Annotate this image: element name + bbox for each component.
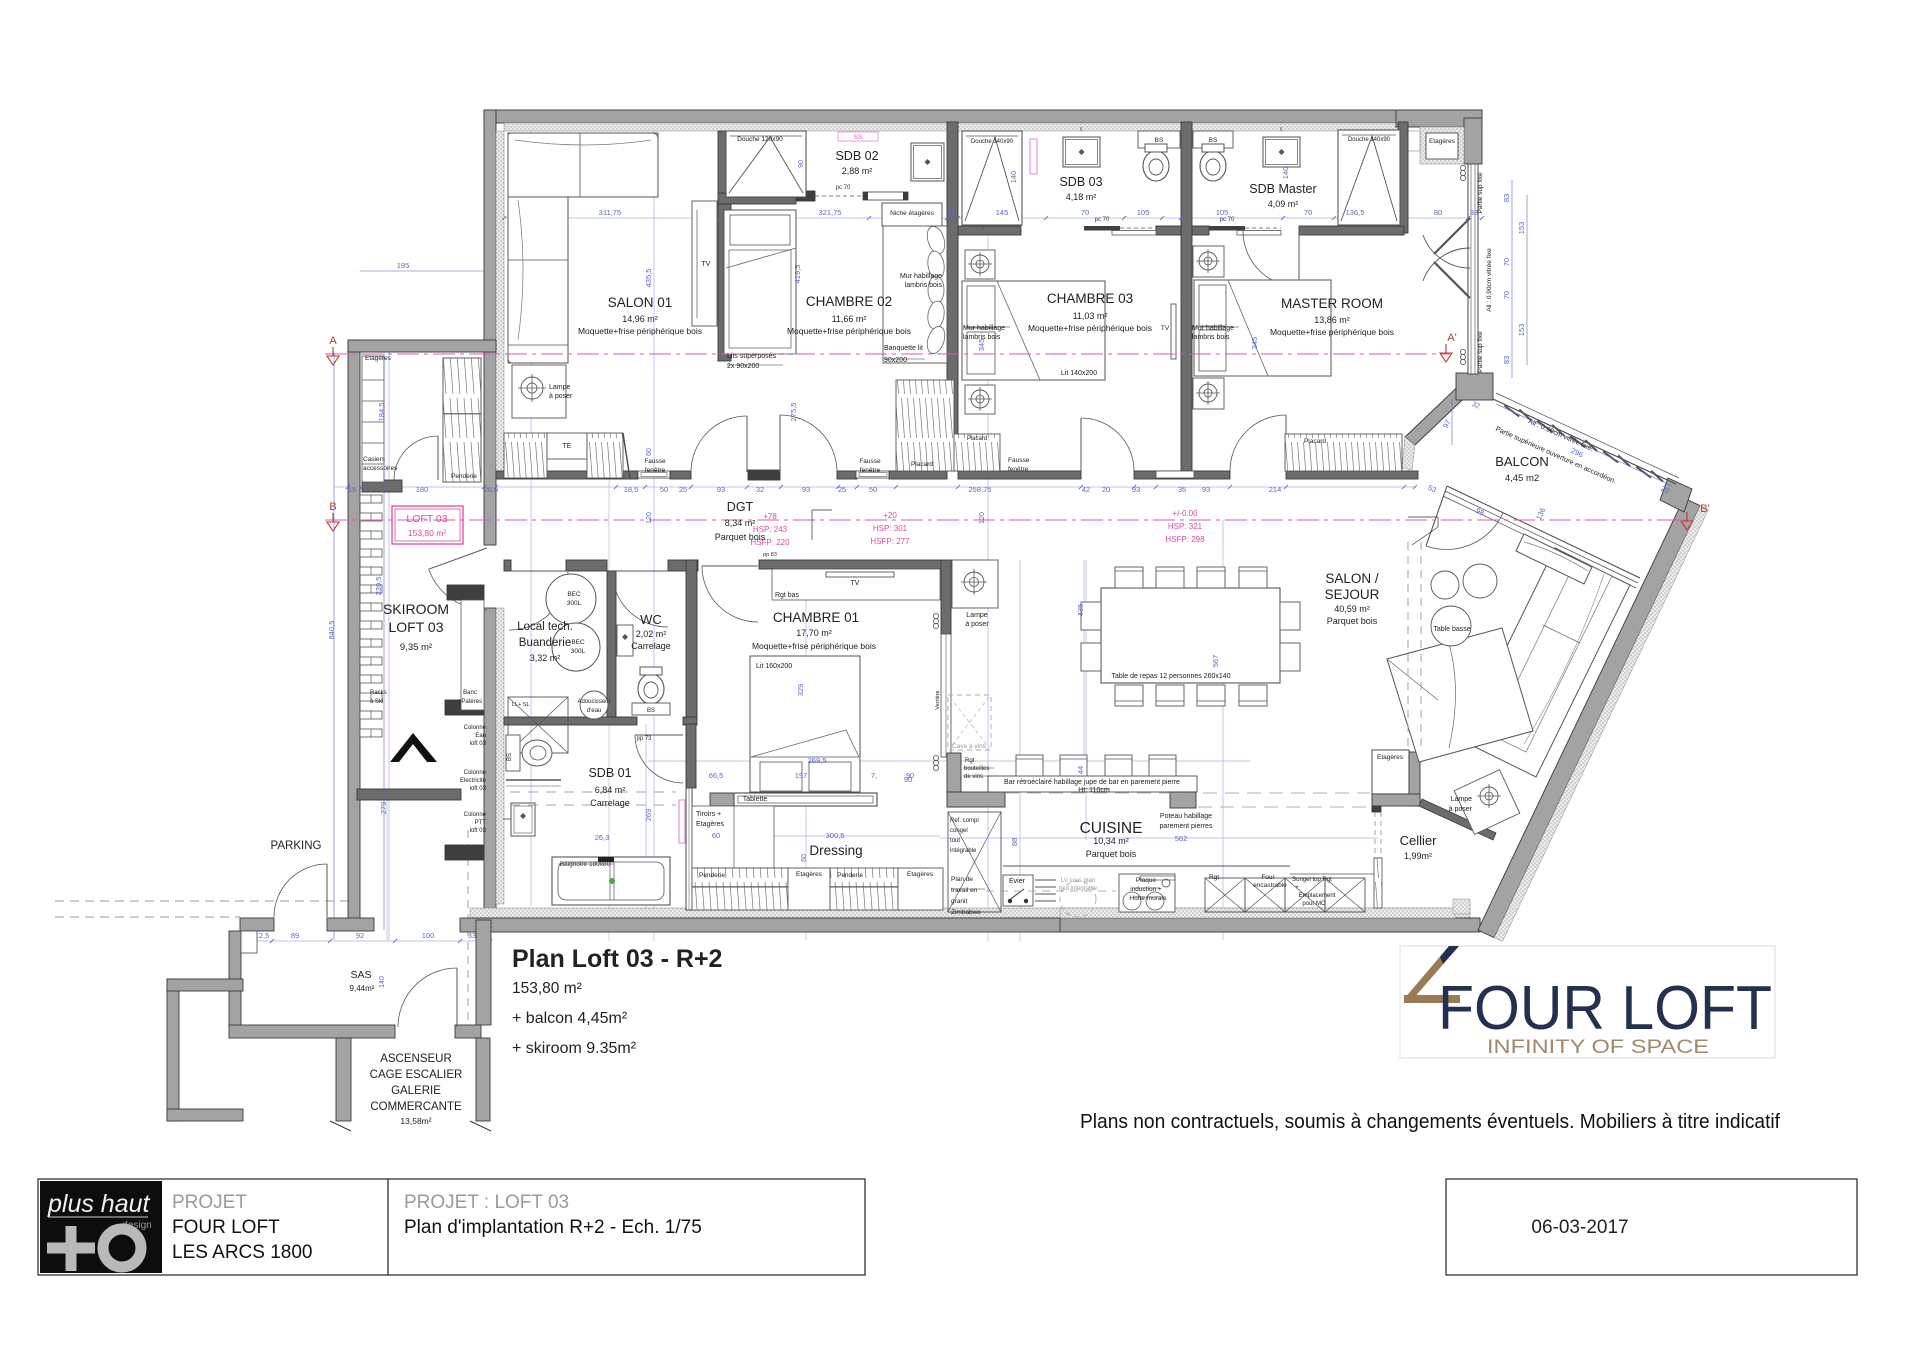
svg-text:Cellier: Cellier: [1400, 833, 1438, 848]
svg-text:4,45 m2: 4,45 m2: [1505, 473, 1539, 484]
svg-text:93: 93: [717, 485, 725, 494]
svg-text:Partie sup fixe: Partie sup fixe: [1477, 331, 1484, 373]
svg-text:Placard: Placard: [967, 436, 987, 442]
svg-text:Moquette+frise périphérique bo: Moquette+frise périphérique bois: [1270, 327, 1394, 337]
svg-text:140: 140: [1009, 171, 1018, 184]
svg-text:88: 88: [1010, 838, 1019, 846]
svg-text:32: 32: [756, 485, 764, 494]
svg-text:345: 345: [1250, 337, 1259, 350]
svg-text:Lampe: Lampe: [1451, 796, 1473, 803]
svg-text:DGT: DGT: [727, 500, 754, 514]
svg-text:Moquette+frise périphérique bo: Moquette+frise périphérique bois: [752, 641, 876, 651]
svg-text:Penderie: Penderie: [699, 872, 725, 879]
svg-text:Baignoire 180x80: Baignoire 180x80: [560, 861, 611, 868]
svg-text:06-03-2017: 06-03-2017: [1531, 1217, 1628, 1238]
svg-text:38: 38: [1470, 208, 1478, 217]
svg-text:26,3: 26,3: [595, 833, 610, 842]
svg-text:60: 60: [646, 448, 653, 456]
svg-text:Table basse: Table basse: [1433, 626, 1470, 633]
svg-text:pc 70: pc 70: [1220, 217, 1235, 223]
svg-text:+ skiroom 9.35m²: + skiroom 9.35m²: [512, 1040, 637, 1057]
svg-text:WC: WC: [640, 612, 662, 627]
svg-text:Zimbabwe: Zimbabwe: [951, 909, 981, 916]
svg-text:35: 35: [1178, 485, 1186, 494]
svg-text:Fausse: Fausse: [644, 458, 666, 465]
svg-text:TV: TV: [702, 261, 711, 268]
svg-text:SAS: SAS: [350, 969, 371, 981]
svg-text:Hotte murale: Hotte murale: [1129, 895, 1167, 902]
svg-text:ASCENSEUR: ASCENSEUR: [380, 1053, 452, 1065]
svg-text:MASTER ROOM: MASTER ROOM: [1281, 296, 1383, 311]
svg-text:25: 25: [679, 485, 687, 494]
svg-text:CAGE ESCALIER: CAGE ESCALIER: [370, 1069, 463, 1081]
svg-text:Electricité: Electricité: [460, 778, 487, 784]
svg-text:BS: BS: [1155, 137, 1164, 144]
svg-text:90: 90: [798, 160, 805, 168]
svg-text:Rgt: Rgt: [965, 758, 975, 764]
svg-text:SEJOUR: SEJOUR: [1325, 587, 1380, 602]
svg-text:70: 70: [1502, 258, 1511, 266]
svg-text:83: 83: [1502, 194, 1511, 202]
svg-text:70: 70: [1502, 291, 1511, 299]
svg-text:311,75: 311,75: [599, 208, 621, 217]
svg-text:9,44m²: 9,44m²: [350, 984, 375, 993]
svg-text:14,96 m²: 14,96 m²: [622, 314, 658, 324]
svg-text:153: 153: [1517, 324, 1526, 337]
svg-text:B: B: [329, 501, 336, 513]
svg-text:Songel top Rgt: Songel top Rgt: [1292, 877, 1332, 883]
svg-text:GALERIE: GALERIE: [391, 1085, 441, 1097]
svg-text:Lit 140x200: Lit 140x200: [1061, 370, 1097, 377]
svg-text:70: 70: [1304, 208, 1312, 217]
svg-text:LOFT 03: LOFT 03: [389, 619, 444, 635]
svg-text:258,75: 258,75: [969, 485, 992, 494]
svg-text:140: 140: [1281, 167, 1290, 180]
svg-text:Etagères: Etagères: [796, 871, 823, 878]
svg-text:loft 03: loft 03: [470, 828, 487, 834]
svg-text:HSFP: 277: HSFP: 277: [870, 537, 910, 546]
svg-text:105: 105: [1216, 208, 1229, 217]
svg-text:90x200: 90x200: [884, 357, 907, 364]
svg-text:93: 93: [802, 485, 810, 494]
svg-text:FOUR LOFT: FOUR LOFT: [172, 1217, 280, 1238]
svg-text:à Ski: à Ski: [370, 699, 383, 705]
svg-text:300,5: 300,5: [826, 831, 845, 840]
svg-text:CUISINE: CUISINE: [1080, 820, 1143, 837]
svg-text:A: A: [329, 335, 337, 347]
svg-text:Mur habillage: Mur habillage: [963, 325, 1005, 332]
svg-text:184,5: 184,5: [377, 403, 386, 422]
svg-text:BALCON: BALCON: [1495, 454, 1548, 469]
svg-text:Rgt: Rgt: [1209, 874, 1219, 881]
svg-text:2,02 m²: 2,02 m²: [636, 629, 667, 639]
svg-text:CHAMBRE 03: CHAMBRE 03: [1047, 291, 1133, 306]
svg-text:Etagères: Etagères: [1377, 754, 1404, 761]
svg-text:4,09 m²: 4,09 m²: [1268, 199, 1299, 209]
svg-text:+78: +78: [763, 512, 777, 521]
svg-text:66,5: 66,5: [709, 771, 724, 780]
svg-text:153,80 m²: 153,80 m²: [512, 980, 582, 997]
svg-text:Tablette: Tablette: [743, 796, 768, 803]
svg-text:140: 140: [379, 976, 386, 988]
svg-text:321,75: 321,75: [819, 208, 842, 217]
svg-text:90: 90: [904, 775, 912, 784]
svg-text:17,70 m²: 17,70 m²: [796, 628, 832, 638]
svg-text:HSP: 321: HSP: 321: [1168, 522, 1203, 531]
svg-text:Four: Four: [1261, 874, 1275, 881]
svg-text:Douche 120x90: Douche 120x90: [737, 136, 783, 143]
svg-text:Eau: Eau: [475, 733, 486, 739]
svg-text:60: 60: [801, 854, 808, 862]
svg-text:Penderie: Penderie: [837, 872, 863, 879]
svg-text:345: 345: [977, 339, 986, 352]
svg-text:à poser: à poser: [1449, 806, 1473, 813]
svg-text:Verrière: Verrière: [935, 690, 941, 709]
svg-text:TV: TV: [1161, 325, 1170, 332]
svg-text:Plaque: Plaque: [1136, 877, 1157, 884]
svg-text:Rgt bas: Rgt bas: [775, 592, 800, 599]
svg-text:INFINITY OF SPACE: INFINITY OF SPACE: [1487, 1037, 1709, 1058]
svg-text:congel: congel: [950, 828, 968, 834]
svg-text:840,5: 840,5: [327, 621, 336, 640]
svg-text:Emplacement: Emplacement: [1299, 893, 1336, 899]
svg-text:intégrable: intégrable: [950, 848, 977, 854]
svg-text:Etagères: Etagères: [696, 821, 725, 828]
svg-text:136,5: 136,5: [1346, 208, 1365, 217]
svg-text:Parquet bois: Parquet bois: [1086, 849, 1137, 859]
svg-text:3,32 m²: 3,32 m²: [530, 653, 561, 663]
svg-text:80: 80: [1434, 208, 1442, 217]
svg-text:+/-0.00: +/-0.00: [1172, 509, 1198, 518]
svg-text:4,18 m²: 4,18 m²: [1066, 192, 1097, 202]
svg-text:Penderie: Penderie: [451, 473, 477, 480]
svg-text:70: 70: [1081, 208, 1089, 217]
svg-text:d'eau: d'eau: [587, 708, 602, 714]
svg-text:SDB 03: SDB 03: [1059, 175, 1102, 189]
svg-text:TV: TV: [851, 580, 860, 587]
svg-text:lambris bois: lambris bois: [905, 282, 943, 289]
svg-text:BEC: BEC: [567, 591, 581, 598]
svg-text:40,59 m²: 40,59 m²: [1334, 604, 1370, 614]
svg-text:Casiers: Casiers: [363, 456, 386, 463]
svg-text:20: 20: [1102, 485, 1110, 494]
svg-text:Dressing: Dressing: [809, 843, 862, 858]
svg-text:419,5: 419,5: [793, 265, 802, 284]
svg-text:Ref. compl: Ref. compl: [950, 818, 979, 824]
svg-text:LL+ SL: LL+ SL: [512, 702, 530, 708]
svg-text:pour MO: pour MO: [1302, 901, 1326, 907]
svg-text:Moquette+frise périphérique bo: Moquette+frise périphérique bois: [1028, 323, 1152, 333]
svg-text:Carrelage: Carrelage: [631, 641, 671, 651]
svg-text:BS: BS: [507, 753, 513, 761]
svg-text:Tiroirs +: Tiroirs +: [696, 811, 721, 818]
svg-text:214: 214: [1269, 485, 1282, 494]
svg-text:PROJET: PROJET: [172, 1192, 247, 1213]
svg-text:435: 435: [1076, 604, 1085, 617]
svg-text:567: 567: [1211, 655, 1220, 668]
svg-text:pp 73: pp 73: [636, 736, 652, 742]
svg-text:Lampe: Lampe: [966, 612, 988, 619]
svg-text:encastrable: encastrable: [1253, 882, 1287, 889]
svg-text:Plans non contractuels, soumis: Plans non contractuels, soumis à changem…: [1080, 1111, 1780, 1133]
svg-text:Bar rétroéclairé habillage jup: Bar rétroéclairé habillage jupe de bar e…: [1004, 779, 1180, 786]
svg-text:à poser: à poser: [965, 621, 989, 628]
svg-text:195: 195: [397, 261, 410, 270]
svg-text:Mur habillage: Mur habillage: [1192, 325, 1234, 332]
svg-text:SDB Master: SDB Master: [1249, 182, 1316, 196]
svg-text:50: 50: [869, 485, 877, 494]
svg-text:HSP: 301: HSP: 301: [873, 524, 908, 533]
svg-text:6,84 m²: 6,84 m²: [595, 785, 626, 795]
svg-text:LOFT 03: LOFT 03: [406, 513, 447, 525]
svg-text:Etagères: Etagères: [1429, 138, 1456, 145]
svg-text:Placard: Placard: [1304, 438, 1326, 445]
svg-text:SKIROOM: SKIROOM: [383, 601, 449, 617]
svg-text:Fausse: Fausse: [1008, 457, 1030, 464]
svg-text:bouteilles: bouteilles: [964, 766, 989, 772]
svg-text:BS: BS: [1209, 137, 1218, 144]
svg-text:pc 70: pc 70: [1095, 217, 1110, 223]
svg-text:279: 279: [379, 802, 388, 815]
svg-text:Douche 140x90: Douche 140x90: [971, 139, 1014, 145]
svg-text:parement pierres: parement pierres: [1160, 823, 1213, 830]
svg-text:travail en: travail en: [951, 887, 978, 894]
svg-text:Colonne: Colonne: [464, 725, 487, 731]
svg-text:Cave à vins: Cave à vins: [952, 743, 987, 750]
svg-text:SALON 01: SALON 01: [608, 295, 673, 310]
svg-text:83: 83: [1502, 356, 1511, 364]
svg-text:20: 20: [948, 208, 956, 217]
svg-text:Colonne: Colonne: [464, 770, 487, 776]
svg-text:A': A': [1447, 332, 1456, 344]
svg-text:accessoires: accessoires: [363, 465, 398, 472]
svg-text:435,5: 435,5: [644, 269, 653, 288]
svg-text:de vins: de vins: [964, 774, 983, 780]
svg-text:1,99m²: 1,99m²: [1404, 851, 1432, 861]
svg-text:Douche 140x90: Douche 140x90: [1348, 137, 1391, 143]
svg-text:180: 180: [416, 485, 429, 494]
svg-text:pp 83: pp 83: [763, 552, 777, 558]
svg-text:plus haut: plus haut: [47, 1190, 151, 1218]
svg-text:Lampe: Lampe: [549, 384, 571, 391]
svg-text:Local tech.: Local tech.: [517, 621, 573, 633]
svg-text:13,58m²: 13,58m²: [400, 1116, 431, 1126]
svg-text:SDB 01: SDB 01: [588, 766, 631, 780]
svg-text:Plan de: Plan de: [951, 876, 973, 883]
svg-text:60: 60: [712, 831, 720, 840]
svg-text:granit: granit: [951, 898, 967, 905]
svg-text:SALON /: SALON /: [1325, 571, 1379, 586]
svg-text:BS: BS: [647, 708, 655, 714]
svg-text:Moquette+frise périphérique bo: Moquette+frise périphérique bois: [578, 326, 702, 336]
svg-text:SS: SS: [854, 134, 863, 141]
svg-text:à poser: à poser: [549, 393, 573, 400]
svg-text:BEC: BEC: [571, 639, 585, 646]
svg-text:300L: 300L: [571, 648, 586, 655]
svg-text:Poteau habillage: Poteau habillage: [1160, 813, 1212, 820]
svg-text:18,5: 18,5: [624, 485, 639, 494]
svg-text:Etagères: Etagères: [907, 871, 934, 878]
svg-text:Adoucisseur: Adoucisseur: [577, 699, 610, 705]
svg-text:Lits superposés: Lits superposés: [727, 353, 777, 360]
svg-text:Table de repas 12 personnes 26: Table de repas 12 personnes 260x140: [1111, 673, 1230, 680]
svg-text:2,88 m²: 2,88 m²: [842, 166, 873, 176]
svg-text:Placard: Placard: [911, 461, 933, 468]
svg-text:269: 269: [644, 809, 653, 822]
svg-text:loft 03: loft 03: [470, 786, 487, 792]
svg-text:153: 153: [1517, 222, 1526, 235]
svg-text:CHAMBRE 02: CHAMBRE 02: [806, 294, 892, 309]
svg-text:120: 120: [979, 512, 986, 524]
svg-text:PROJET : LOFT 03: PROJET : LOFT 03: [404, 1192, 569, 1213]
svg-text:Moquette+frise périphérique bo: Moquette+frise périphérique bois: [787, 326, 911, 336]
svg-text:10,34 m²: 10,34 m²: [1093, 836, 1129, 846]
svg-text:329: 329: [796, 684, 805, 697]
svg-text:153,80 m²: 153,80 m²: [408, 528, 446, 538]
svg-text:LV sous plan: LV sous plan: [1061, 878, 1095, 884]
svg-text:197: 197: [795, 771, 808, 780]
svg-text:HSFP: 298: HSFP: 298: [1165, 535, 1205, 544]
svg-text:89: 89: [291, 931, 299, 940]
svg-text:Banc: Banc: [463, 690, 477, 696]
svg-text:50: 50: [660, 485, 668, 494]
svg-text:44: 44: [1076, 766, 1085, 774]
svg-text:SDB 02: SDB 02: [835, 149, 878, 163]
svg-text:Ht: 110cm: Ht: 110cm: [1078, 787, 1110, 794]
svg-text:TE: TE: [563, 443, 572, 450]
svg-text:Fausse: Fausse: [859, 458, 881, 465]
svg-text:145: 145: [996, 208, 1009, 217]
svg-text:8,34 m²: 8,34 m²: [725, 518, 756, 528]
svg-text:105: 105: [1137, 208, 1150, 217]
svg-text:Evier: Evier: [1009, 878, 1026, 885]
svg-text:+Patères: +Patères: [458, 699, 482, 705]
svg-text:2x 90x200: 2x 90x200: [727, 363, 759, 370]
svg-text:120: 120: [646, 512, 653, 524]
svg-text:Carrelage: Carrelage: [590, 798, 630, 808]
svg-text:Plan Loft 03 - R+2: Plan Loft 03 - R+2: [512, 945, 722, 973]
svg-text:7,: 7,: [871, 771, 877, 780]
svg-text:275,5: 275,5: [789, 403, 798, 422]
svg-text:+: +: [1295, 885, 1299, 891]
svg-text:Lit 160x200: Lit 160x200: [756, 663, 792, 670]
svg-text:PARKING: PARKING: [271, 840, 322, 852]
svg-text:Colonne: Colonne: [464, 812, 487, 818]
svg-text:Buanderie: Buanderie: [519, 637, 571, 649]
svg-text:100: 100: [422, 931, 435, 940]
svg-text:COMMERCANTE: COMMERCANTE: [370, 1101, 462, 1113]
svg-text:Banquette lit: Banquette lit: [884, 345, 923, 352]
svg-text:Parquet bois: Parquet bois: [1327, 616, 1378, 626]
svg-text:B': B': [1700, 503, 1709, 515]
svg-text:Parquet bois: Parquet bois: [715, 532, 766, 542]
svg-text:Etagères: Etagères: [365, 355, 392, 362]
svg-text:fenêtre: fenêtre: [645, 467, 666, 474]
svg-text:fenêtre: fenêtre: [860, 467, 881, 474]
svg-text:269,5: 269,5: [808, 756, 827, 765]
svg-text:92: 92: [356, 931, 364, 940]
svg-text:300L: 300L: [567, 600, 582, 607]
svg-text:fenêtre: fenêtre: [1008, 466, 1029, 473]
svg-text:All : 0.90cm vitrée fixe: All : 0.90cm vitrée fixe: [1486, 248, 1493, 312]
svg-text:pc 70: pc 70: [836, 185, 851, 191]
svg-text:9,35 m²: 9,35 m²: [400, 642, 432, 653]
svg-text:562: 562: [1175, 834, 1188, 843]
svg-text:PTT: PTT: [475, 820, 487, 826]
svg-text:42: 42: [1082, 485, 1090, 494]
svg-text:+ balcon 4,45m²: + balcon 4,45m²: [512, 1010, 628, 1027]
svg-text:Plan d'implantation R+2 - Ech.: Plan d'implantation R+2 - Ech. 1/75: [404, 1217, 702, 1238]
svg-text:Niche étagères: Niche étagères: [890, 210, 934, 217]
svg-text:CHAMBRE 01: CHAMBRE 01: [773, 610, 859, 625]
svg-text:+20: +20: [883, 511, 897, 520]
svg-text:LES ARCS 1800: LES ARCS 1800: [172, 1242, 312, 1263]
svg-text:93: 93: [1132, 485, 1140, 494]
svg-text:93: 93: [1202, 485, 1210, 494]
svg-text:13,86 m²: 13,86 m²: [1314, 315, 1350, 325]
svg-text:11,03 m²: 11,03 m²: [1073, 311, 1108, 321]
svg-text:loft 03: loft 03: [470, 741, 487, 747]
svg-text:FOUR LOFT: FOUR LOFT: [1438, 974, 1772, 1043]
svg-text:tout: tout: [950, 838, 960, 844]
svg-text:Mur habillage: Mur habillage: [900, 273, 942, 280]
svg-text:11,66 m²: 11,66 m²: [832, 314, 867, 324]
svg-text:lambris bois: lambris bois: [1192, 334, 1230, 341]
svg-text:239,5: 239,5: [374, 577, 383, 596]
